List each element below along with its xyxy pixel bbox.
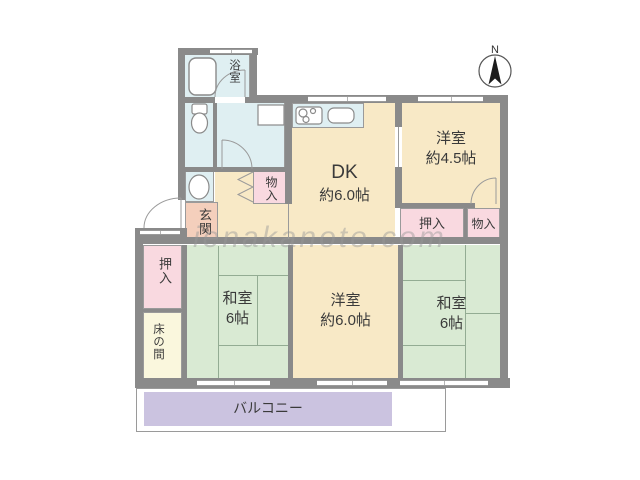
wall bbox=[395, 203, 475, 208]
wall bbox=[285, 103, 292, 204]
label-bathroom: 浴室 bbox=[226, 59, 242, 84]
label-western-ne: 洋室 約4.5帖 bbox=[402, 129, 500, 170]
label-western-ne-name: 洋室 bbox=[402, 129, 500, 149]
label-balcony: バルコニー bbox=[144, 399, 392, 418]
label-dk-size: 約6.0帖 bbox=[294, 186, 395, 206]
tatami-line bbox=[218, 275, 288, 276]
label-western-s: 洋室 約6.0帖 bbox=[293, 291, 398, 332]
wall bbox=[178, 48, 185, 200]
room-toilet bbox=[183, 99, 215, 169]
compass: N bbox=[479, 44, 511, 87]
window bbox=[418, 96, 483, 102]
label-japanese-se-size: 6帖 bbox=[403, 314, 500, 334]
window bbox=[308, 96, 386, 102]
wall bbox=[182, 167, 290, 172]
label-japanese-se: 和室 6帖 bbox=[403, 294, 500, 335]
wall bbox=[135, 228, 143, 388]
room-washroom bbox=[215, 99, 285, 169]
compass-circle bbox=[479, 55, 511, 87]
window bbox=[400, 380, 488, 386]
window bbox=[140, 230, 180, 235]
compass-north-label: N bbox=[491, 44, 499, 56]
label-japanese-se-name: 和室 bbox=[403, 294, 500, 314]
label-western-ne-size: 約4.5帖 bbox=[402, 149, 500, 169]
kitchen-counter bbox=[292, 103, 364, 128]
window bbox=[210, 49, 252, 54]
wall bbox=[143, 309, 182, 312]
label-oshiire-w: 押入 bbox=[155, 257, 174, 285]
tatami-line bbox=[403, 280, 465, 281]
label-monoire-ne: 物入 bbox=[467, 216, 500, 232]
watermark: ienakanote.com bbox=[193, 221, 447, 255]
label-japanese-sw-name: 和室 bbox=[187, 289, 288, 309]
label-tokonoma: 床の間 bbox=[150, 323, 166, 361]
wall bbox=[213, 103, 217, 169]
label-dk-name: DK bbox=[294, 160, 395, 186]
washbasin-area bbox=[185, 171, 214, 202]
tatami-line bbox=[218, 345, 288, 346]
window bbox=[197, 380, 270, 386]
wall bbox=[250, 48, 257, 102]
sliding-door-line bbox=[398, 127, 399, 167]
tatami-line bbox=[403, 345, 465, 346]
label-dk: DK 約6.0帖 bbox=[294, 160, 395, 206]
window bbox=[317, 380, 387, 386]
label-western-s-size: 約6.0帖 bbox=[293, 311, 398, 331]
label-western-s-name: 洋室 bbox=[293, 291, 398, 311]
compass-needle-icon bbox=[489, 56, 502, 85]
door-arc-front-door bbox=[144, 198, 181, 228]
door-opening-bathroom bbox=[215, 97, 245, 103]
label-japanese-sw: 和室 6帖 bbox=[187, 289, 288, 330]
label-japanese-sw-size: 6帖 bbox=[187, 309, 288, 329]
floor-plan: N 浴室 DK 約6.0帖 洋室 約4.5帖 押入 物入 物入 玄関 押入 床の… bbox=[0, 0, 640, 480]
label-monoire-hall: 物入 bbox=[263, 176, 280, 202]
